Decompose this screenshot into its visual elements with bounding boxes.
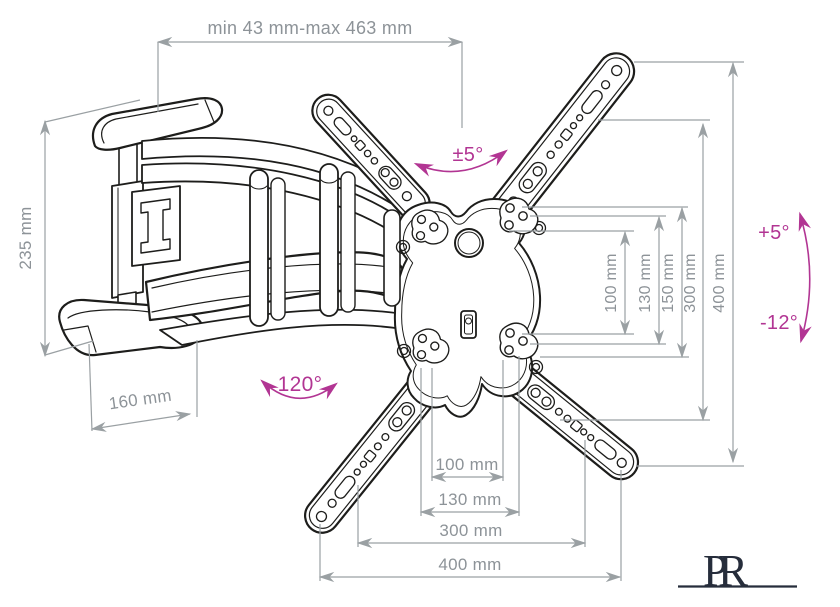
- dim-label-v-150: 150 mm: [660, 253, 677, 313]
- dim-label-v-130: 130 mm: [637, 253, 654, 313]
- angle-swivel: 120°: [262, 373, 336, 398]
- dim-label-v-400: 400 mm: [711, 253, 728, 313]
- angle-label-tilt-up: +5°: [758, 222, 790, 244]
- brand-logo: P R: [678, 546, 797, 596]
- dim-label-h-300: 300 mm: [439, 521, 502, 540]
- angle-pan: ±5°: [416, 144, 506, 172]
- angle-label-tilt-down: -12°: [760, 312, 798, 334]
- dim-label-plate-height: 235 mm: [16, 206, 35, 269]
- dim-label-arm-depth: 160 mm: [108, 386, 173, 414]
- dim-label-top-range: min 43 mm-max 463 mm: [207, 18, 412, 38]
- angle-tilt-arc: [800, 214, 810, 341]
- dim-label-h-100: 100 mm: [435, 455, 498, 474]
- logo-letter-r: R: [718, 546, 748, 596]
- angle-tilt: +5° -12°: [758, 214, 810, 341]
- dim-arm-depth-arrow: [92, 414, 190, 429]
- plate-left-pivot-post: [384, 210, 400, 306]
- dim-label-h-130: 130 mm: [438, 490, 501, 509]
- dim-label-v-300: 300 mm: [682, 253, 699, 313]
- dim-label-h-400: 400 mm: [438, 555, 501, 574]
- technical-drawing-page: min 43 mm-max 463 mm 235 mm 160 mm 100 m…: [0, 0, 840, 607]
- angle-label-pan: ±5°: [453, 144, 484, 166]
- wall-mount-technical-drawing: min 43 mm-max 463 mm 235 mm 160 mm 100 m…: [0, 0, 840, 607]
- dim-label-v-100: 100 mm: [603, 253, 620, 313]
- angle-label-swivel: 120°: [278, 373, 323, 396]
